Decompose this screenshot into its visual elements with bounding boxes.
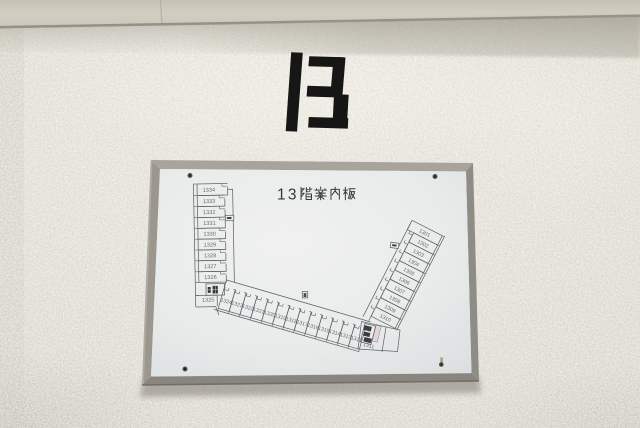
svg-text:1333: 1333	[203, 199, 216, 205]
svg-text:1334: 1334	[203, 188, 216, 194]
svg-text:13: 13	[277, 187, 299, 204]
svg-text:1330: 1330	[203, 232, 216, 238]
svg-text:1326: 1326	[204, 275, 217, 281]
svg-text:1327: 1327	[204, 264, 217, 270]
svg-text:1331: 1331	[203, 221, 216, 227]
svg-text:1325: 1325	[202, 297, 215, 303]
svg-text:1328: 1328	[204, 253, 217, 259]
svg-text:1332: 1332	[203, 210, 216, 216]
svg-text:1329: 1329	[204, 242, 217, 248]
